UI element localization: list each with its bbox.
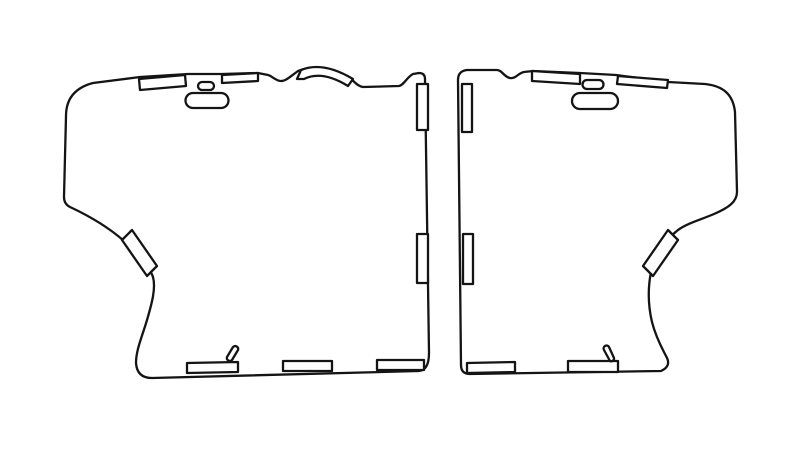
left-panel-piece — [64, 67, 429, 378]
right-panel-bottom-tab-b — [568, 361, 618, 372]
left-panel-outline — [64, 68, 429, 378]
drawing-sheet — [0, 0, 800, 453]
left-panel-small-slot — [198, 82, 214, 90]
left-panel-top-tab-b — [222, 73, 258, 83]
right-panel-pill-slot — [572, 93, 618, 109]
right-panel-side-tab-top — [462, 84, 472, 132]
right-panel-bottom-tab-a — [467, 362, 515, 373]
left-panel-top-tab-a — [139, 75, 186, 90]
right-panel-small-slot — [583, 80, 604, 89]
right-panel-piece — [458, 70, 737, 374]
right-panel-outline — [458, 70, 737, 374]
left-panel-bottom-tab-c — [377, 360, 424, 370]
left-panel-bottom-tab-a — [187, 362, 238, 373]
right-panel-top-tab-a — [532, 71, 580, 84]
left-panel-side-tab-top — [417, 84, 428, 130]
left-panel-side-tab-mid — [417, 234, 428, 283]
left-panel-bottom-tab-b — [283, 361, 332, 371]
right-panel-side-tab-mid — [463, 234, 473, 284]
pattern-line-drawing — [0, 0, 800, 453]
left-panel-pill-slot — [186, 93, 229, 108]
